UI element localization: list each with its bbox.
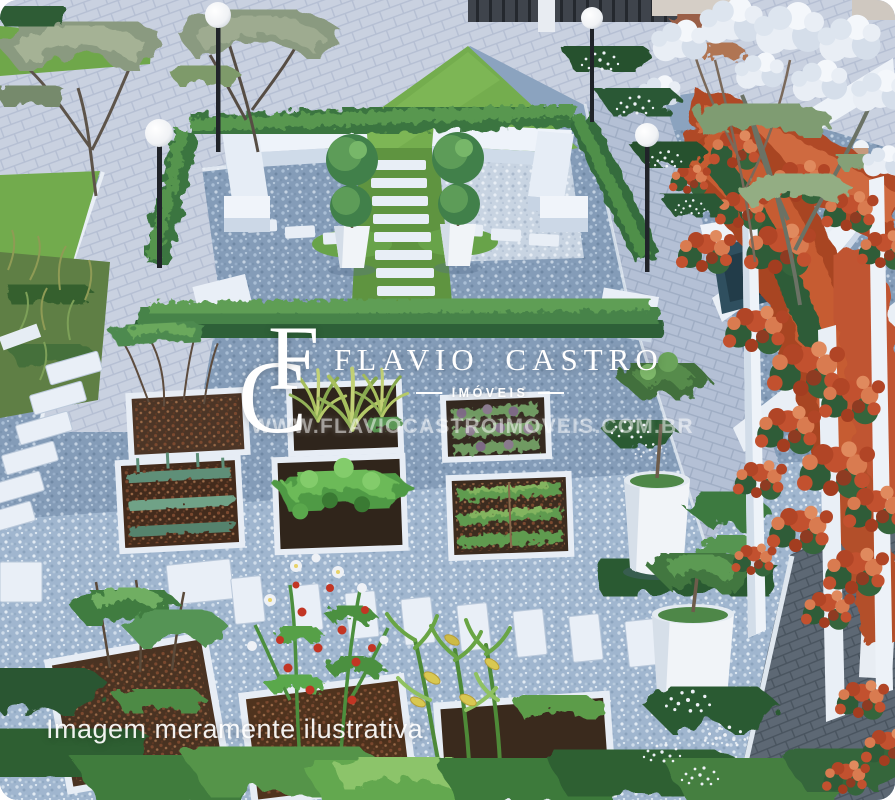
garden-render	[0, 0, 895, 800]
garden-illustration: C F FLAVIO CASTRO IMÓVEIS WWW.FLAVIOCAST…	[0, 0, 895, 800]
logo-letter-f: F	[268, 312, 319, 404]
garden-bed	[274, 456, 405, 552]
garden-bed	[117, 449, 242, 551]
brand-tagline: IMÓVEIS	[415, 386, 565, 400]
tagline-dash-right	[538, 392, 564, 394]
tagline-text: IMÓVEIS	[452, 386, 529, 400]
garden-bed	[449, 474, 572, 558]
brand-website: WWW.FLAVIOCASTROIMOVEIS.COM.BR	[251, 415, 694, 439]
tagline-dash-left	[416, 392, 442, 394]
disclaimer-caption: Imagem meramente ilustrativa	[46, 714, 423, 745]
gate-pillar	[538, 0, 555, 32]
brand-name: FLAVIO CASTRO	[334, 342, 664, 378]
corner-bush	[0, 11, 58, 22]
